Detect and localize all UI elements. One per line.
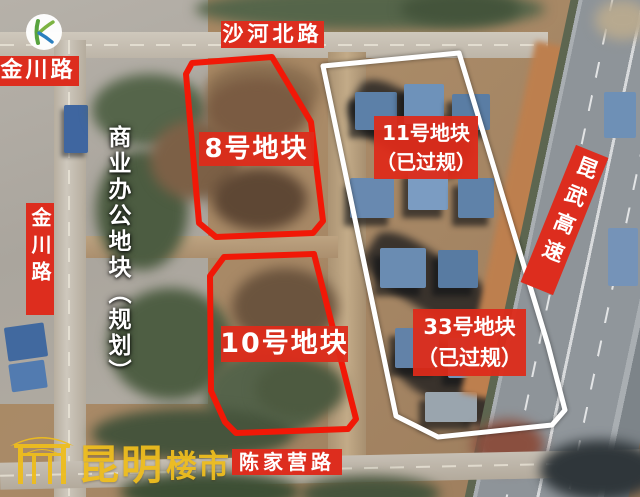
road-label-jinchuan-left: 金川路 <box>26 203 54 315</box>
building-blue-roof <box>64 105 88 153</box>
tower-under-construction <box>380 248 426 288</box>
building-blue-warehouse <box>4 322 48 361</box>
site-logo <box>25 13 63 51</box>
commercial-plot-label: 商业办公地块（规划） <box>103 125 134 391</box>
paifang-gate-icon <box>6 424 78 486</box>
road-label-chenjiaying: 陈家营路 <box>232 449 342 475</box>
terrain-plot10-green <box>255 360 345 418</box>
tower-under-construction <box>458 178 494 218</box>
plot-label-33: 33号地块 （已过规） <box>413 309 526 376</box>
plot-33-name: 33号地块 <box>423 312 515 343</box>
building-blue-roof <box>608 228 638 286</box>
plot-label-11: 11号地块 （已过规） <box>374 116 478 179</box>
watermark-brand: 昆明 <box>78 445 164 486</box>
low-building <box>425 392 477 422</box>
tower-under-construction <box>438 250 478 288</box>
plot-11-status: （已过规） <box>376 148 476 177</box>
road-label-shahe-north: 沙河北路 <box>221 21 324 48</box>
watermark-suffix: 楼市 <box>166 451 230 484</box>
satellite-map: 沙河北路 金川路 金川路 陈家营路 昆武高速 8号地块 10号地块 11号地块 … <box>0 0 640 497</box>
plot-label-8: 8号地块 <box>199 132 314 166</box>
plot-label-10: 10号地块 <box>221 326 348 362</box>
plot-33-status: （已过规） <box>417 343 522 374</box>
plot-11-name: 11号地块 <box>382 119 470 148</box>
watermark: 昆明 楼市 <box>6 424 230 486</box>
k-leaf-logo-icon <box>25 13 63 51</box>
building-blue-warehouse2 <box>8 360 48 393</box>
building-blue-roof <box>604 92 636 138</box>
tower-under-construction <box>350 178 394 218</box>
road-label-jinchuan-top: 金川路 <box>0 56 79 86</box>
terrain-plot8-dirt2 <box>212 168 307 230</box>
